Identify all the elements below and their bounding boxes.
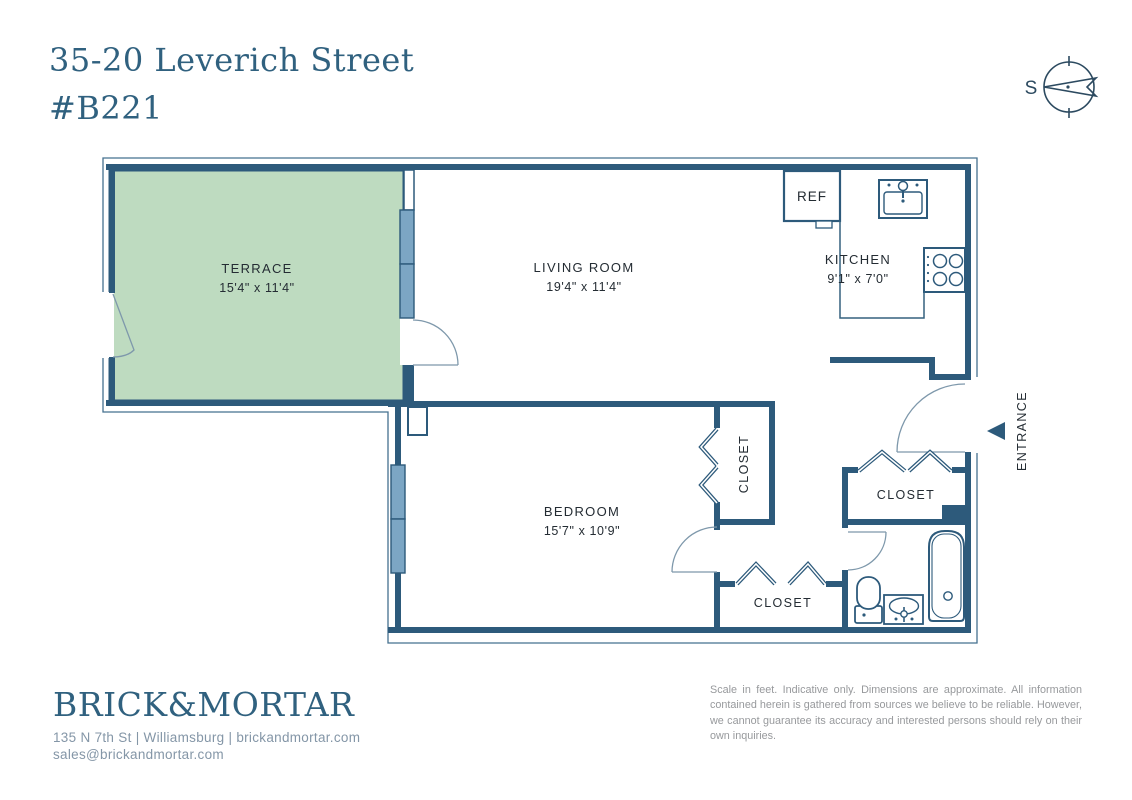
toilet (855, 577, 882, 623)
disclaimer-text: Scale in feet. Indicative only. Dimensio… (710, 683, 1082, 744)
brand-contact-line: 135 N 7th St | Williamsburg | brickandmo… (53, 730, 360, 747)
bathroom-fixtures (855, 531, 964, 624)
hollow-wall (404, 170, 414, 210)
bathroom-sink (884, 595, 923, 624)
floorplan-page: REF (0, 0, 1132, 800)
entrance-opening (972, 377, 982, 453)
bifold-door (859, 452, 951, 471)
stove (924, 248, 965, 292)
brand-block: BRICK&MORTAR 135 N 7th St | Williamsburg… (53, 688, 360, 764)
window (391, 465, 405, 519)
bedroom-closet-label: CLOSET (737, 435, 751, 493)
brand-email: sales@brickandmortar.com (53, 747, 360, 764)
hall-closet-label: CLOSET (877, 488, 935, 502)
bedroom-door-arc (672, 527, 717, 572)
living-room-label: LIVING ROOM (534, 260, 635, 275)
kitchen-sink (879, 180, 927, 218)
compass-icon (1044, 56, 1096, 118)
ref-label: REF (797, 189, 827, 204)
entrance-arrow-icon (987, 422, 1005, 440)
entrance-door-arc (897, 384, 965, 452)
window (400, 264, 414, 318)
listing-address: 35-20 Leverich Street (49, 44, 414, 76)
wall-jog (408, 407, 427, 435)
kitchen-counter (840, 221, 924, 318)
bathtub (929, 531, 964, 621)
terrace-living-door-arc (413, 320, 458, 365)
compass-south-label: S (1025, 78, 1038, 99)
kitchen-dims: 9'1" x 7'0" (827, 272, 888, 286)
bedroom-dims: 15'7" x 10'9" (544, 524, 620, 538)
terrace-label: TERRACE (221, 261, 292, 276)
terrace-door-opening (99, 292, 114, 358)
listing-header: 35-20 Leverich Street #B221 (49, 44, 414, 124)
kitchen-fixtures: REF (784, 171, 965, 318)
window (391, 519, 405, 573)
terrace-dims: 15'4" x 11'4" (219, 281, 294, 295)
bathroom-door-arc (848, 532, 886, 570)
kitchen-label: KITCHEN (825, 252, 891, 267)
bifold-door (701, 429, 717, 503)
brand-logo: BRICK&MORTAR (53, 688, 360, 721)
listing-unit: #B221 (49, 92, 414, 124)
living-room-dims: 19'4" x 11'4" (546, 280, 621, 294)
entrance-label: ENTRANCE (1015, 391, 1029, 471)
bedroom-label: BEDROOM (544, 504, 620, 519)
bifold-door (737, 564, 825, 584)
terrace-living-opening (400, 318, 415, 365)
lower-closet-label: CLOSET (754, 596, 812, 610)
window (400, 210, 414, 264)
